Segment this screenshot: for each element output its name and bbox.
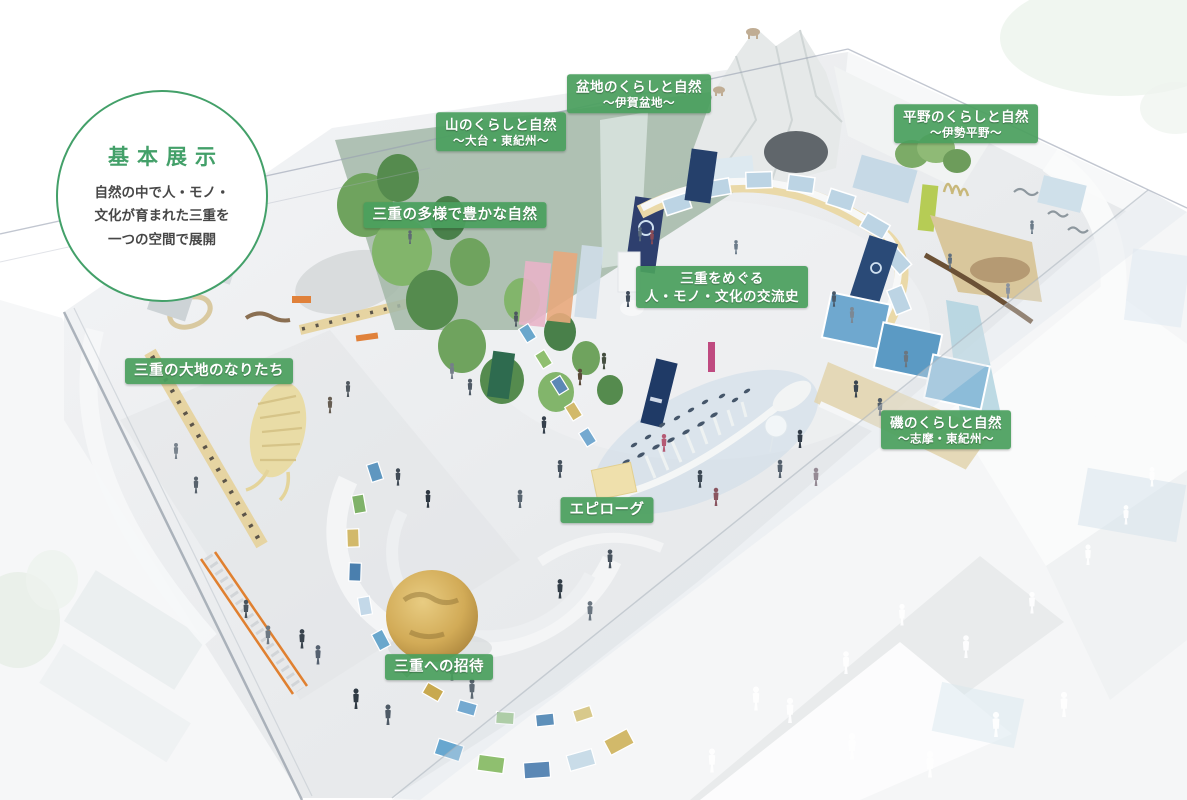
label-plain-life: 平野のくらしと自然 ～伊勢平野～ (894, 104, 1038, 143)
label-basin-life: 盆地のくらしと自然 ～伊賀盆地～ (567, 74, 711, 113)
basic-exhibition-badge: 基本展示 自然の中で人・モノ・ 文化が育まれた三重を 一つの空間で展開 (56, 90, 268, 302)
exhibition-map-page: 基本展示 自然の中で人・モノ・ 文化が育まれた三重を 一つの空間で展開 山のくら… (0, 0, 1187, 800)
label-land-formation: 三重の大地のなりたち (125, 358, 293, 384)
label-epilogue: エピローグ (561, 497, 654, 523)
label-seashore-life: 磯のくらしと自然 ～志摩・東紀州～ (881, 410, 1011, 449)
exhibition-description: 自然の中で人・モノ・ 文化が育まれた三重を 一つの空間で展開 (95, 181, 230, 252)
label-mountain-life: 山のくらしと自然 ～大台・東紀州～ (436, 112, 566, 151)
label-exchange-history: 三重をめぐる 人・モノ・文化の交流史 (636, 266, 808, 308)
label-invitation-to-mie: 三重への招待 (385, 654, 493, 680)
exhibition-title: 基本展示 (100, 141, 224, 171)
label-diverse-nature: 三重の多様で豊かな自然 (364, 202, 547, 228)
